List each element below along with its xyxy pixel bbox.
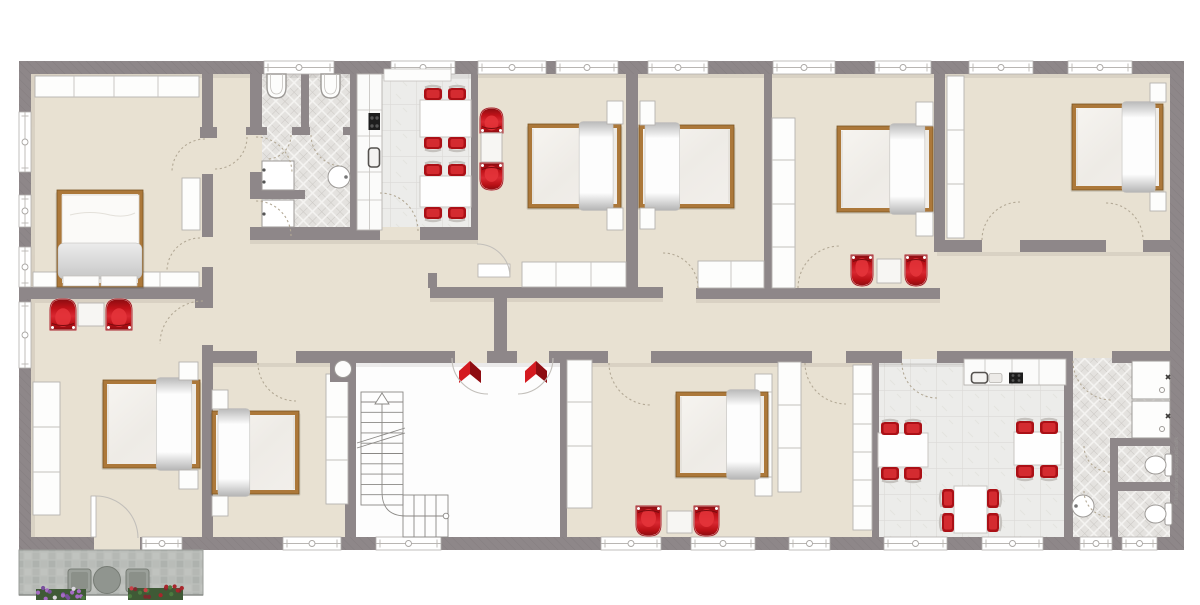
svg-text:© IllustrationenConceptsGrafik: © IllustrationenConceptsGrafik	[1173, 437, 1180, 505]
